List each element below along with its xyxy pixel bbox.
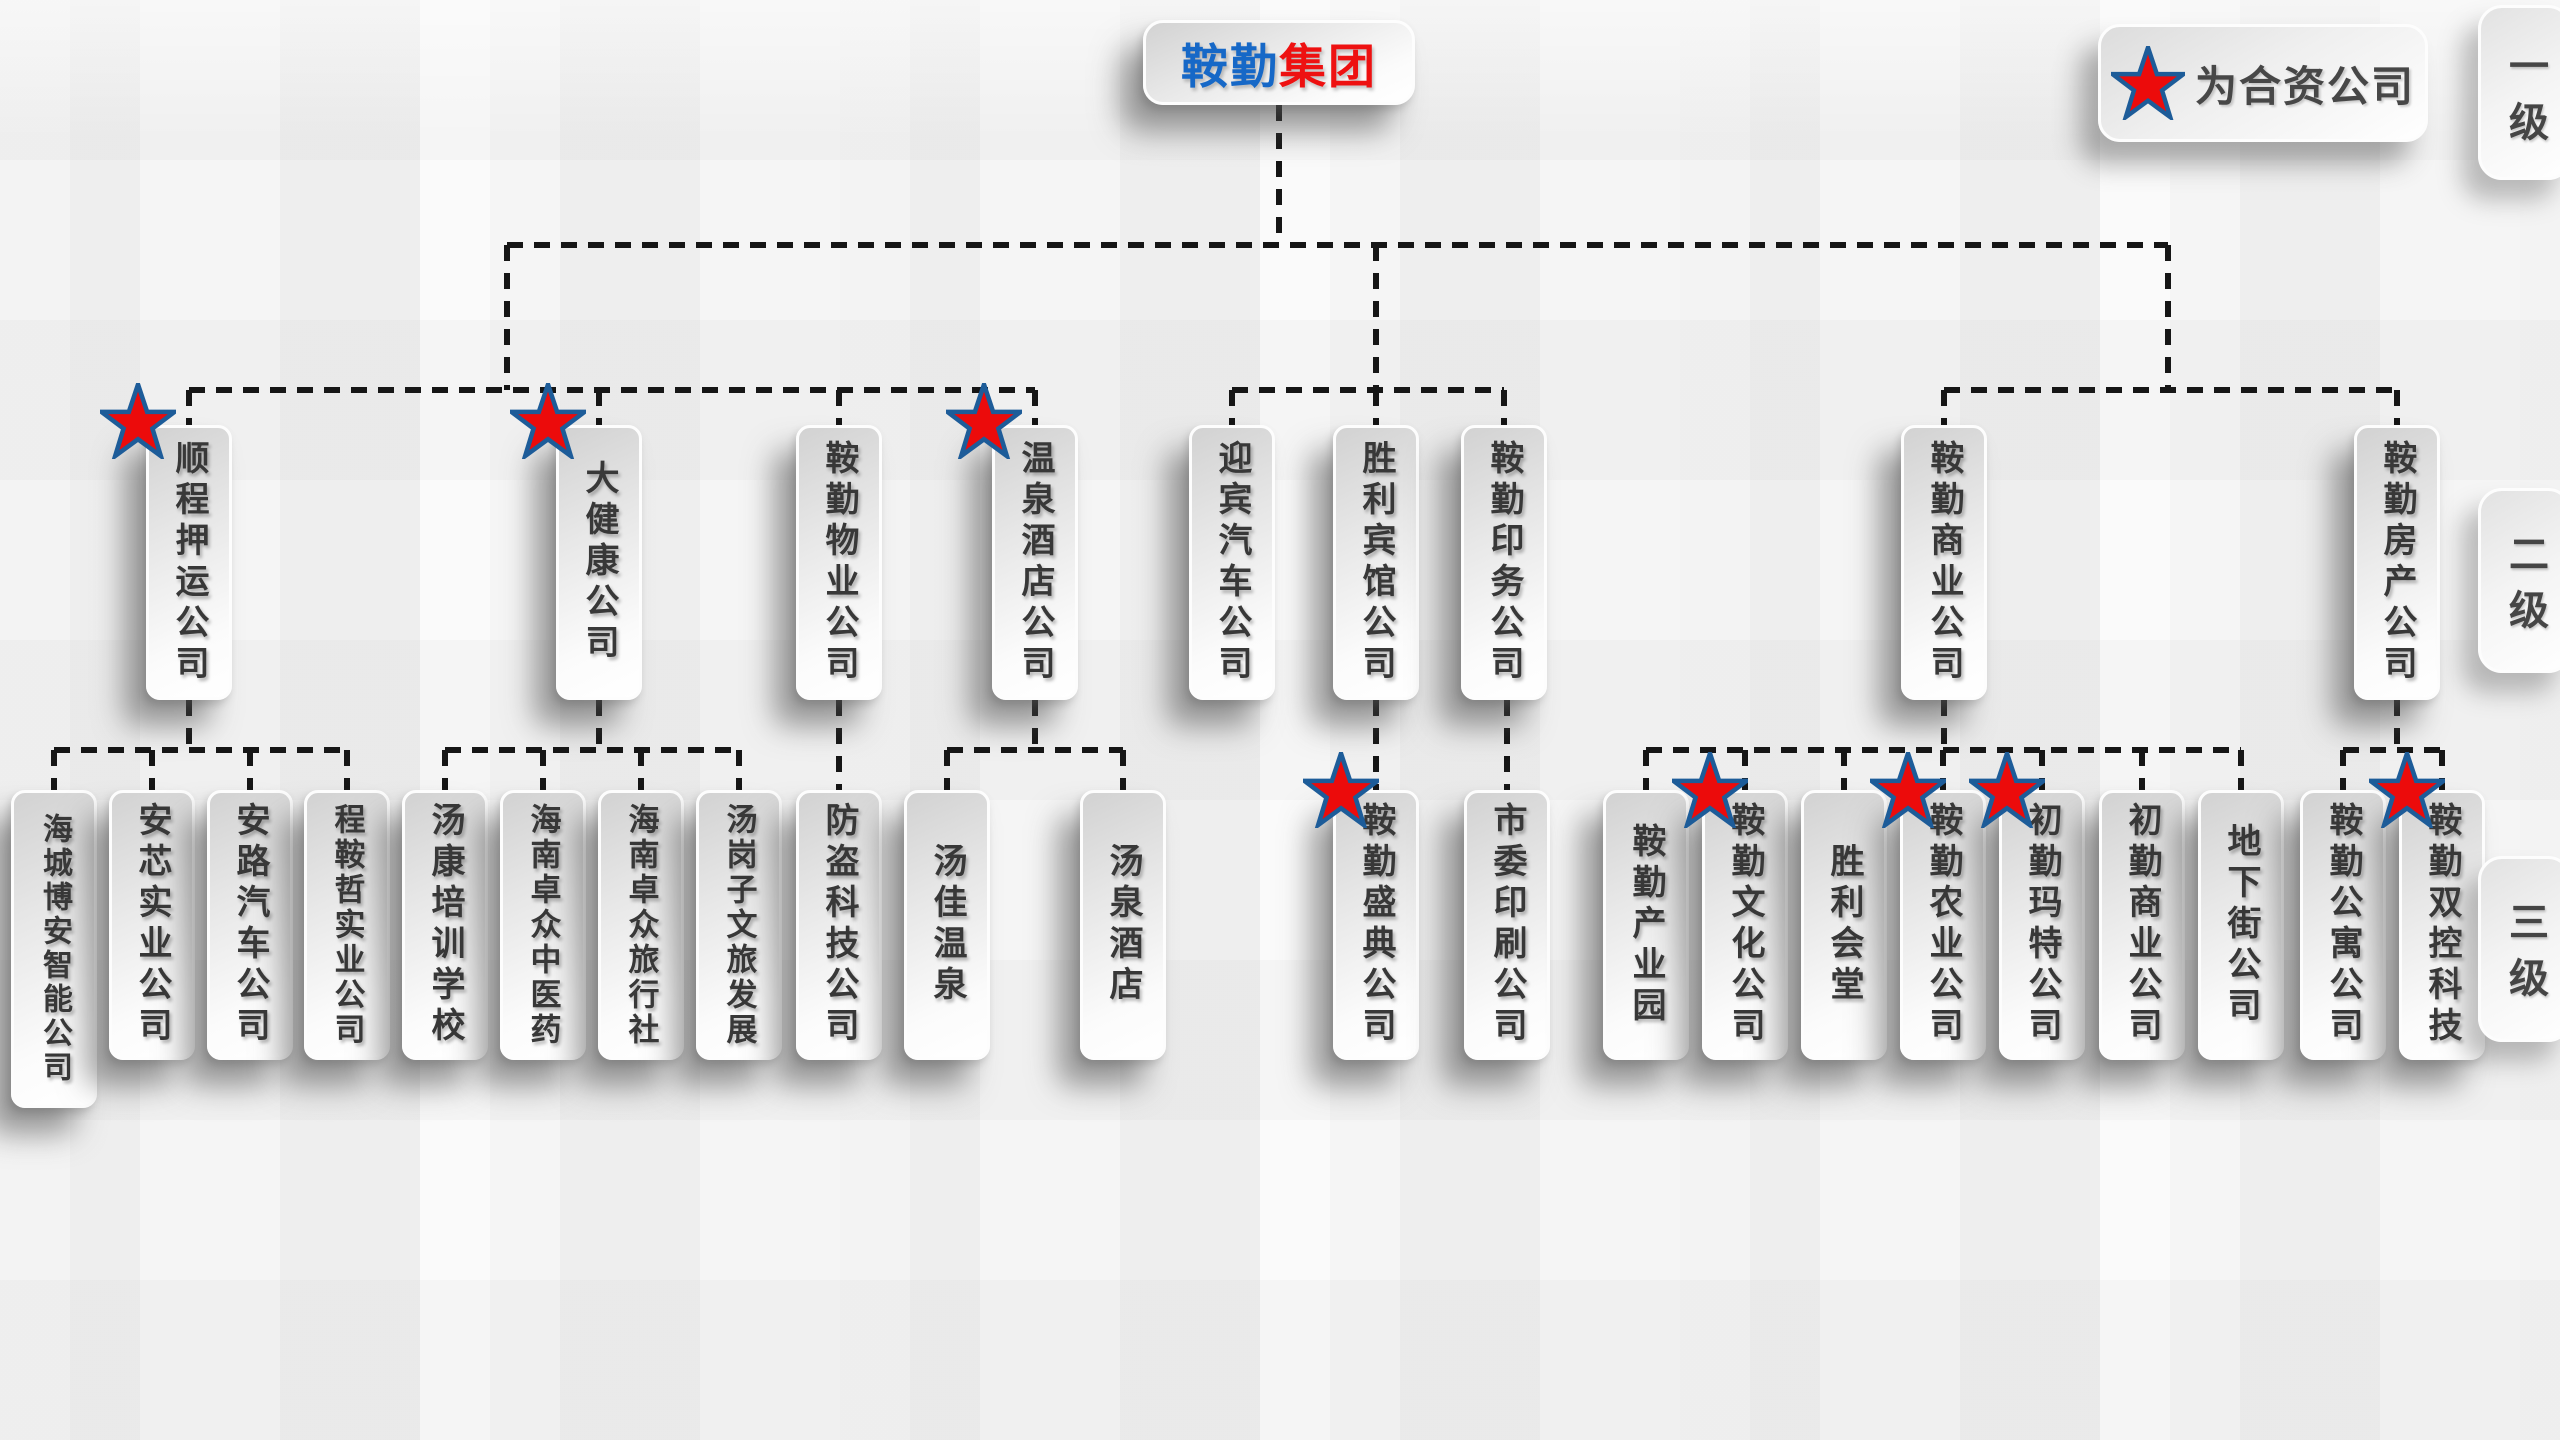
legend: 为合资公司	[2098, 24, 2428, 142]
org-node-label: 温泉酒店公司	[1018, 440, 1052, 686]
org-node-label: 汤岗子文旅发展	[724, 803, 755, 1048]
org-node-level2: 温泉酒店公司	[992, 425, 1078, 700]
joint-venture-star-icon	[2369, 752, 2445, 828]
org-node-label: 鞍勤农业公司	[1926, 802, 1960, 1048]
level-tab-1: 一级	[2478, 5, 2560, 180]
connector-line	[1032, 700, 1038, 750]
connector-line	[189, 387, 1035, 393]
org-node-label: 鞍勤公寓公司	[2326, 802, 2360, 1048]
org-node-label: 鞍勤双控科技	[2425, 802, 2459, 1048]
connector-line	[51, 750, 57, 790]
org-node-label: 海南卓众旅行社	[626, 803, 657, 1048]
org-node-level2: 顺程押运公司	[146, 425, 232, 700]
org-node-level2: 鞍勤房产公司	[2354, 425, 2440, 700]
org-node-level2: 鞍勤商业公司	[1901, 425, 1987, 700]
org-node-level2: 胜利宾馆公司	[1333, 425, 1419, 700]
org-node-label: 汤康培训学校	[428, 802, 462, 1048]
org-node-level3: 鞍勤文化公司	[1702, 790, 1788, 1060]
connector-line	[1373, 245, 1379, 390]
level-tab-3: 三级	[2478, 856, 2560, 1042]
connector-line	[54, 747, 347, 753]
org-node-label: 防盗科技公司	[822, 802, 856, 1048]
connector-line	[836, 390, 842, 425]
org-node-label: 鞍勤文化公司	[1728, 802, 1762, 1048]
org-node-label: 初勤商业公司	[2125, 802, 2159, 1048]
connector-line	[2238, 750, 2244, 790]
joint-venture-star-icon	[1672, 752, 1748, 828]
connector-line	[442, 750, 448, 790]
connector-line	[186, 700, 192, 750]
org-node-level2: 鞍勤物业公司	[796, 425, 882, 700]
org-node-label: 鞍勤物业公司	[822, 440, 856, 686]
org-node-label: 海城博安智能公司	[39, 813, 69, 1085]
org-node-level3: 海城博安智能公司	[11, 790, 97, 1108]
connector-line	[507, 242, 2168, 248]
legend-label: 为合资公司	[2195, 53, 2415, 114]
level-tab-1-label: 一级	[2505, 29, 2545, 157]
org-node-level3: 市委印刷公司	[1464, 790, 1550, 1060]
root-title-primary: 鞍勤	[1181, 28, 1279, 97]
org-node-level3: 初勤商业公司	[2099, 790, 2185, 1060]
org-node-level3: 地下街公司	[2198, 790, 2284, 1060]
connector-line	[1032, 390, 1038, 425]
org-node-label: 鞍勤商业公司	[1927, 440, 1961, 686]
connector-line	[247, 750, 253, 790]
connector-line	[1504, 700, 1510, 790]
org-node-label: 胜利会堂	[1827, 843, 1861, 1007]
joint-venture-star-icon	[2111, 46, 2185, 120]
org-node-level2: 迎宾汽车公司	[1189, 425, 1275, 700]
connector-line	[944, 750, 950, 790]
connector-line	[1229, 390, 1235, 425]
root-node: 鞍勤集团	[1143, 20, 1415, 105]
connector-line	[1841, 750, 1847, 790]
org-node-level3: 汤岗子文旅发展	[696, 790, 782, 1060]
connector-line	[1276, 105, 1282, 245]
connector-line	[504, 245, 510, 390]
org-node-level3: 安芯实业公司	[109, 790, 195, 1060]
org-node-label: 市委印刷公司	[1490, 802, 1524, 1048]
connector-line	[2340, 750, 2346, 790]
connector-line	[1941, 700, 1947, 750]
org-node-label: 鞍勤盛典公司	[1359, 802, 1393, 1048]
connector-line	[736, 750, 742, 790]
connector-line	[596, 700, 602, 750]
org-node-level3: 鞍勤产业园	[1603, 790, 1689, 1060]
connector-line	[344, 750, 350, 790]
org-chart-canvas: 顺程押运公司大健康公司鞍勤物业公司温泉酒店公司迎宾汽车公司胜利宾馆公司鞍勤印务公…	[0, 0, 2560, 1440]
connector-line	[186, 390, 192, 425]
org-node-label: 迎宾汽车公司	[1215, 440, 1249, 686]
org-node-level3: 鞍勤双控科技	[2399, 790, 2485, 1060]
root-title-secondary: 集团	[1279, 28, 1377, 97]
connector-line	[1232, 387, 1504, 393]
org-node-label: 鞍勤产业园	[1629, 823, 1663, 1028]
org-node-label: 大健康公司	[582, 460, 616, 665]
connector-line	[2394, 700, 2400, 750]
org-node-label: 海南卓众中医药	[528, 803, 559, 1048]
org-node-level3: 程鞍哲实业公司	[304, 790, 390, 1060]
joint-venture-star-icon	[100, 383, 176, 459]
connector-line	[149, 750, 155, 790]
connector-line	[1501, 390, 1507, 425]
org-node-label: 鞍勤房产公司	[2380, 440, 2414, 686]
joint-venture-star-icon	[510, 383, 586, 459]
org-node-level3: 鞍勤盛典公司	[1333, 790, 1419, 1060]
connector-line	[2139, 750, 2145, 790]
org-node-level3: 初勤玛特公司	[1999, 790, 2085, 1060]
org-node-level3: 海南卓众旅行社	[598, 790, 684, 1060]
connector-line	[2394, 390, 2400, 425]
org-node-level3: 胜利会堂	[1801, 790, 1887, 1060]
org-node-label: 鞍勤印务公司	[1487, 440, 1521, 686]
joint-venture-star-icon	[1303, 752, 1379, 828]
connector-line	[1944, 387, 2397, 393]
org-node-level3: 防盗科技公司	[796, 790, 882, 1060]
connector-line	[540, 750, 546, 790]
connector-line	[1120, 750, 1126, 790]
org-node-level3: 汤泉酒店	[1080, 790, 1166, 1060]
org-node-level2: 鞍勤印务公司	[1461, 425, 1547, 700]
org-node-level2: 大健康公司	[556, 425, 642, 700]
org-node-level3: 汤佳温泉	[904, 790, 990, 1060]
connector-line	[445, 747, 739, 753]
level-tab-2: 二级	[2478, 488, 2560, 673]
org-node-label: 胜利宾馆公司	[1359, 440, 1393, 686]
joint-venture-star-icon	[1969, 752, 2045, 828]
org-node-label: 初勤玛特公司	[2025, 802, 2059, 1048]
connector-line	[596, 390, 602, 425]
org-node-label: 汤佳温泉	[930, 843, 964, 1007]
org-node-level3: 安路汽车公司	[207, 790, 293, 1060]
level-tab-2-label: 二级	[2505, 517, 2545, 645]
org-node-level3: 鞍勤农业公司	[1900, 790, 1986, 1060]
org-node-label: 汤泉酒店	[1106, 843, 1140, 1007]
connector-line	[1941, 390, 1947, 425]
joint-venture-star-icon	[1870, 752, 1946, 828]
org-node-level3: 海南卓众中医药	[500, 790, 586, 1060]
org-node-level3: 鞍勤公寓公司	[2300, 790, 2386, 1060]
org-node-label: 安芯实业公司	[135, 802, 169, 1048]
connector-line	[1373, 390, 1379, 425]
connector-line	[836, 700, 842, 790]
joint-venture-star-icon	[946, 383, 1022, 459]
connector-line	[2165, 245, 2171, 390]
connector-line	[947, 747, 1123, 753]
connector-line	[638, 750, 644, 790]
connector-line	[1643, 750, 1649, 790]
org-node-label: 顺程押运公司	[172, 440, 206, 686]
org-node-level3: 汤康培训学校	[402, 790, 488, 1060]
org-node-label: 地下街公司	[2224, 823, 2258, 1028]
org-node-label: 安路汽车公司	[233, 802, 267, 1048]
level-tab-3-label: 三级	[2505, 885, 2545, 1013]
org-node-label: 程鞍哲实业公司	[332, 803, 363, 1048]
